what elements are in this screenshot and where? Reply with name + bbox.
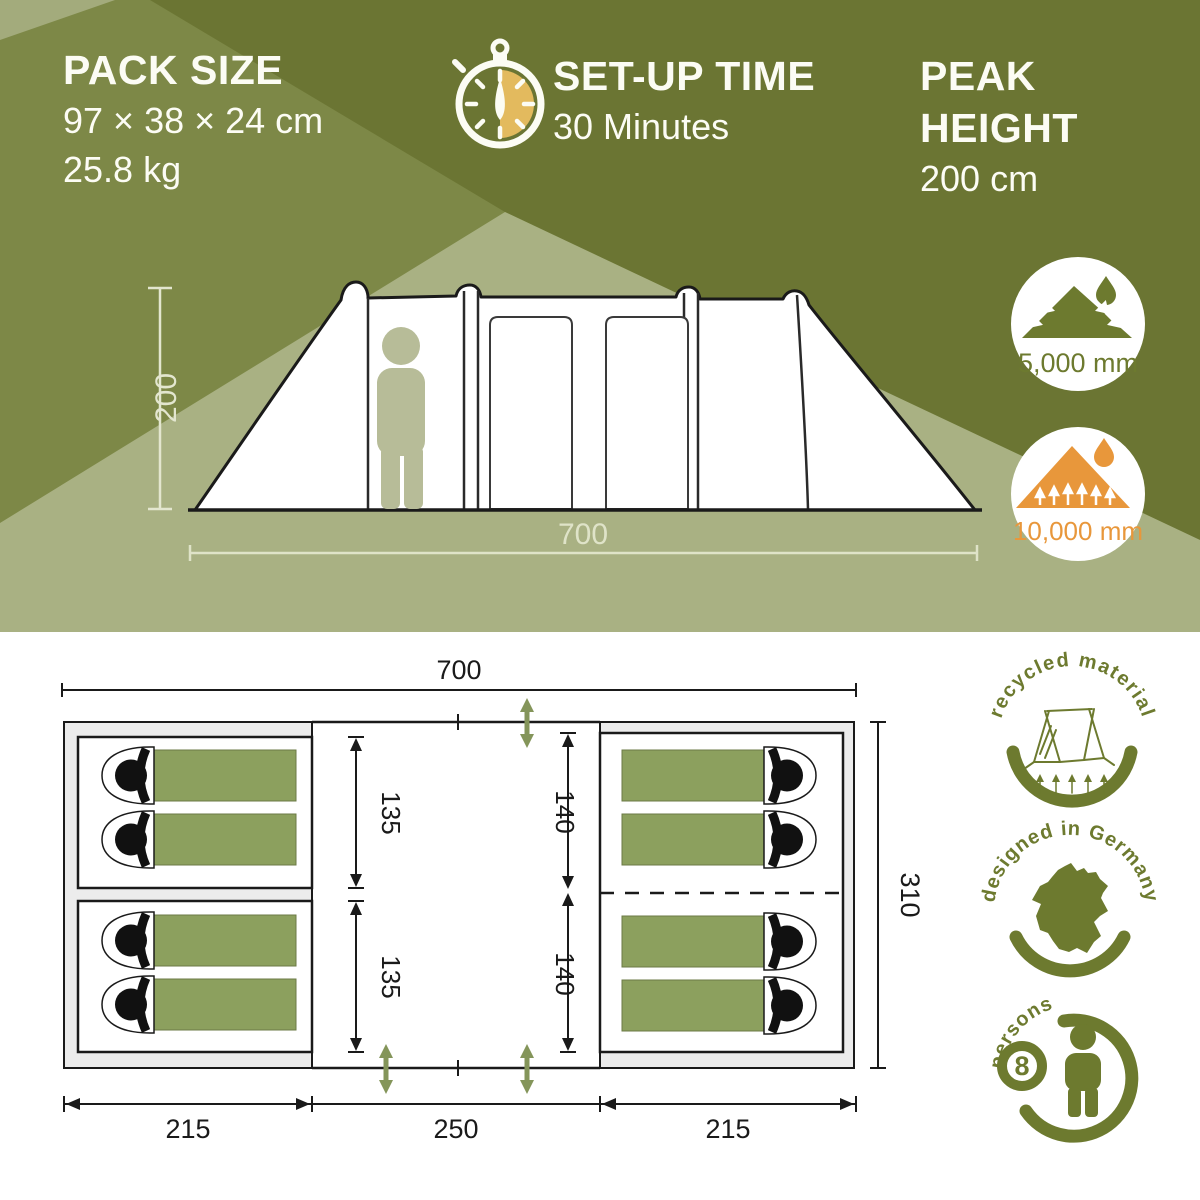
peak-height-value: 200 cm [920,154,1078,203]
pack-size-weight: 25.8 kg [63,145,323,194]
pack-size-title: PACK SIZE [63,44,323,96]
bottom-center-width-label: 250 [433,1114,478,1144]
width-dimension-label: 700 [558,518,608,551]
peak-height-title-1: PEAK [920,50,1078,102]
plan-width-label: 700 [436,655,481,685]
persons-count-label: 8 [1014,1051,1029,1081]
setup-time-block: SET-UP TIME 30 Minutes [553,50,815,151]
height-dimension-label: 200 [150,373,183,423]
plan-depth-label: 310 [895,872,925,917]
setup-time-value: 30 Minutes [553,102,815,151]
peak-height-block: PEAK HEIGHT 200 cm [920,50,1078,203]
roof-water-column-label: 5,000 mm [1018,348,1138,378]
pack-size-dimensions: 97 × 38 × 24 cm [63,96,323,145]
left-cabin-top-depth-label: 135 [376,791,406,834]
waterproof-floor-badge: 10,000 mm [1011,427,1145,561]
pack-size-block: PACK SIZE 97 × 38 × 24 cm 25.8 kg [63,44,323,194]
right-cabin-top-depth-label: 140 [550,790,580,833]
peak-height-title-2: HEIGHT [920,102,1078,154]
floor-water-column-label: 10,000 mm [1013,516,1143,546]
left-cabin-bottom-depth-label: 135 [376,955,406,998]
setup-time-title: SET-UP TIME [553,50,815,102]
bottom-left-width-label: 215 [165,1114,210,1144]
bottom-right-width-label: 215 [705,1114,750,1144]
waterproof-roof-badge: 5,000 mm [1011,257,1145,391]
right-cabin-bottom-depth-label: 140 [550,952,580,995]
